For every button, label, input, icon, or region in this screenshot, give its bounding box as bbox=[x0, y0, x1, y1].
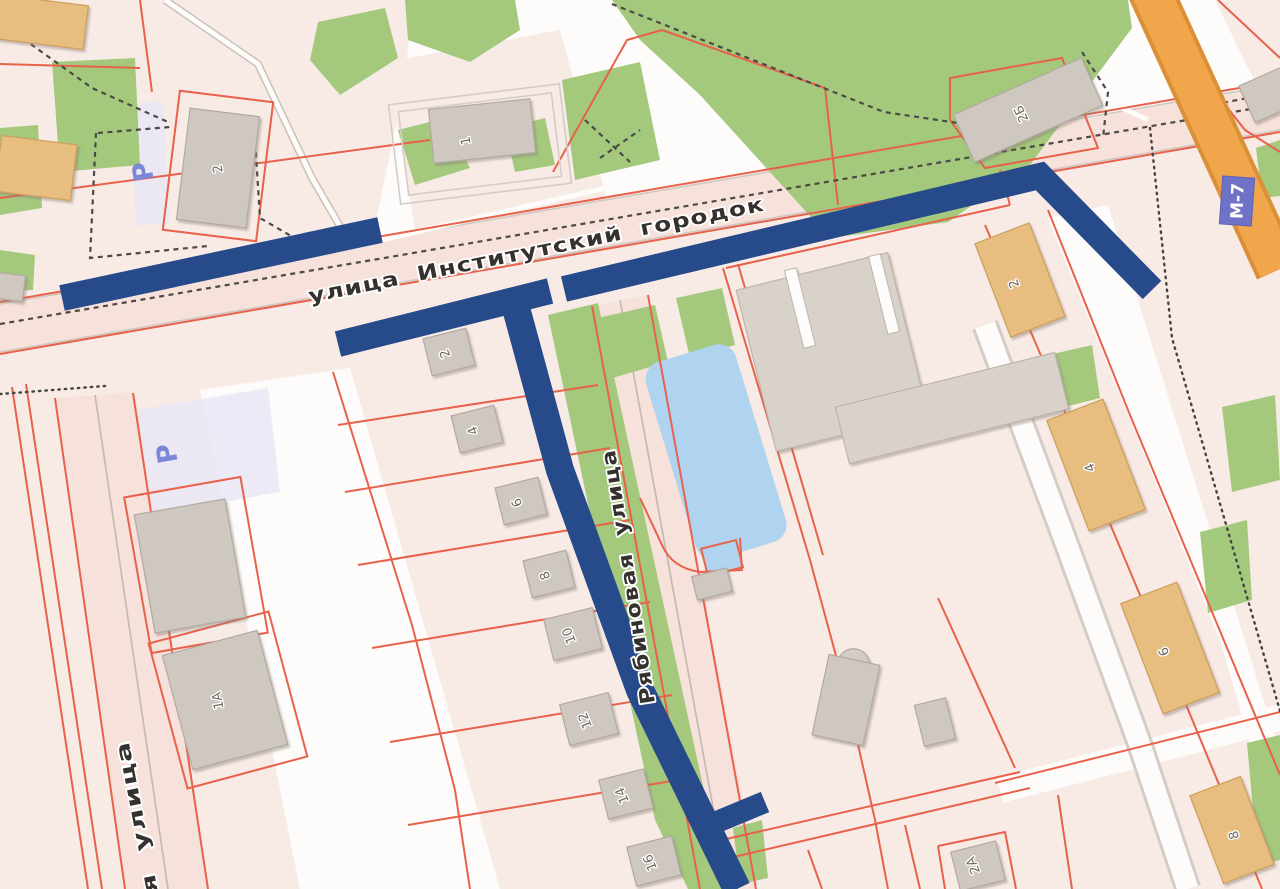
highway-badge: М-7 bbox=[1219, 176, 1254, 226]
housenumber-label: 1А bbox=[210, 691, 228, 711]
map-canvas[interactable]: улица Институтский городок Рябиновая ули… bbox=[0, 0, 1280, 889]
svg-text:М-7: М-7 bbox=[1227, 183, 1248, 219]
map-viewport[interactable]: улица Институтский городок Рябиновая ули… bbox=[0, 0, 1280, 889]
